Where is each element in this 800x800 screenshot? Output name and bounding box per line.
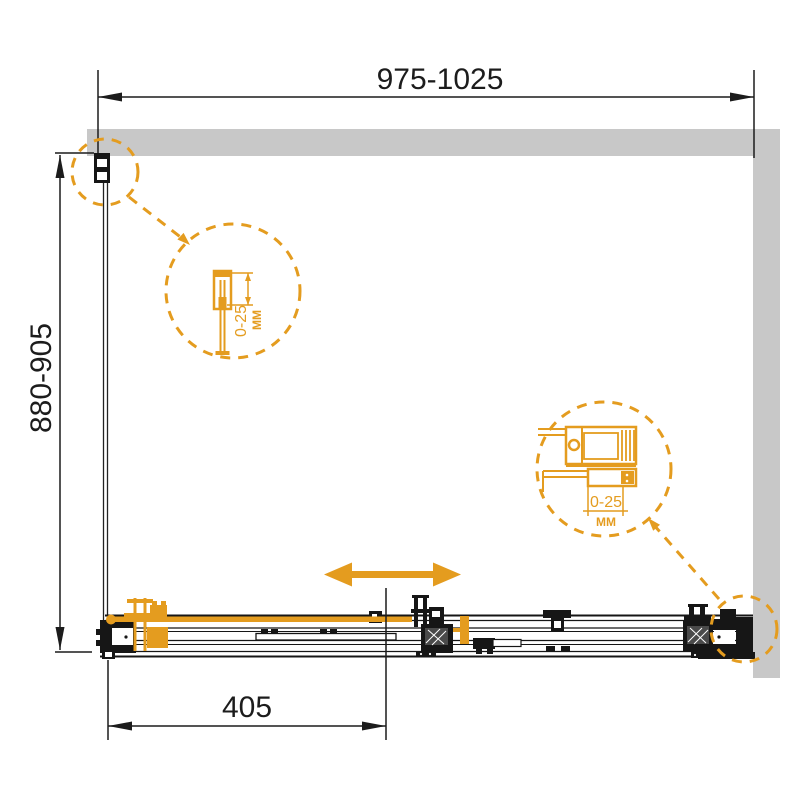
height-dimension-label: 880-905	[25, 323, 58, 433]
arrow-left-icon	[98, 93, 122, 102]
track-left-wall-profile	[96, 620, 136, 659]
installation-diagram: 975-1025 880-905	[0, 0, 800, 800]
wall-profile-adjust-unit-label: ММ	[250, 310, 264, 330]
offset-dimension-label: 405	[222, 691, 272, 724]
callout-leader-2	[653, 524, 719, 599]
bracket-adjust-unit-label: ММ	[596, 515, 616, 529]
arrow-right-icon	[730, 93, 754, 102]
right-wall	[753, 129, 780, 678]
callout-circles	[72, 139, 777, 662]
roller-carriage-1	[411, 595, 453, 657]
bottom-track	[96, 595, 755, 659]
installation-diagram-page: 975-1025 880-905	[0, 0, 800, 800]
arrow-left-icon	[108, 722, 132, 731]
width-dimension-label: 975-1025	[377, 63, 504, 96]
walls	[87, 129, 780, 678]
callout-leader-1	[129, 197, 183, 239]
arrow-down-icon	[56, 627, 65, 650]
height-dimension: 880-905	[25, 153, 94, 652]
bracket-adjust-range-label: 0-25	[590, 494, 622, 511]
door-offset-dimension: 405	[108, 588, 386, 740]
top-wall	[87, 129, 753, 156]
wall-profile-adjust-range-label: 0-25	[233, 305, 250, 337]
wall-profile-detail: 0-25 ММ	[214, 271, 264, 355]
arrow-up-icon	[56, 155, 65, 178]
arrow-right-icon	[362, 722, 386, 731]
wall-profile-rib	[97, 167, 107, 172]
left-wall-profile	[94, 153, 110, 629]
slide-direction-arrow-icon	[324, 563, 461, 587]
